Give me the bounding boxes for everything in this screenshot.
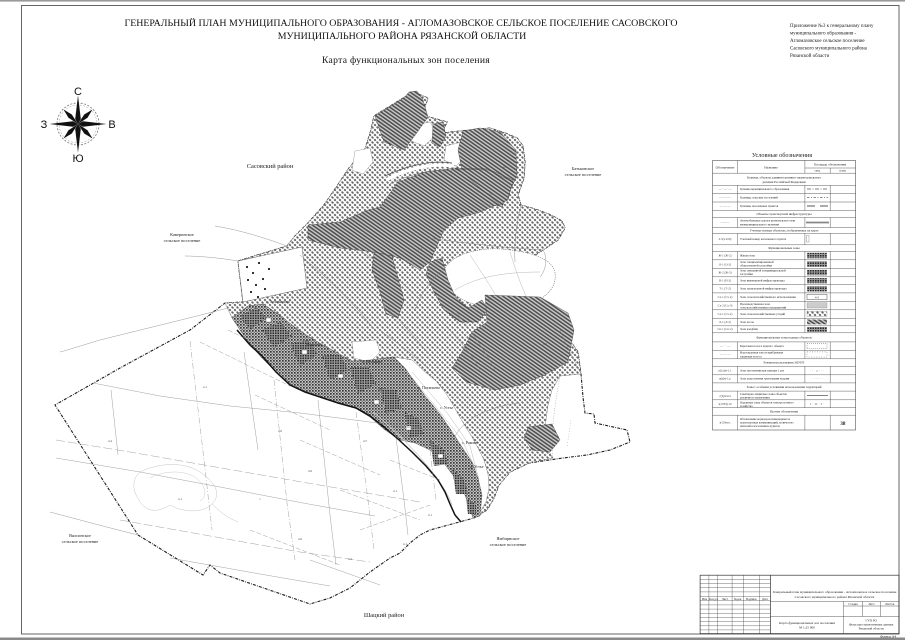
svg-text:Название: Название — [764, 165, 778, 169]
svg-text:4.1: 4.1 — [203, 385, 208, 389]
svg-text:Сх-1 (Сх-2): Сх-1 (Сх-2) — [718, 312, 733, 316]
svg-text:4.6: 4.6 — [378, 387, 383, 391]
svg-text:Сх-1 (Сх-2): Сх-1 (Сх-2) — [718, 295, 733, 299]
svg-text:4.1: 4.1 — [418, 247, 423, 251]
svg-text:Зона подтопления грунтовыми во: Зона подтопления грунтовыми водами — [740, 377, 790, 381]
svg-text:Зона лесов: Зона лесов — [740, 320, 754, 324]
svg-text:с. Агломазово: с. Агломазово — [266, 299, 290, 304]
svg-text:Зона инженерной инфраструктуры: Зона инженерной инфраструктуры — [740, 279, 785, 283]
svg-text:сельское поселение: сельское поселение — [565, 172, 602, 177]
svg-text:Подпись: Подпись — [746, 597, 758, 601]
svg-text:Границы сельских поселений: Границы сельских поселений — [740, 196, 778, 200]
svg-text:Каверинское: Каверинское — [170, 232, 194, 237]
svg-text:Кол.уч: Кол.уч — [709, 597, 718, 601]
svg-text:В: В — [108, 119, 115, 131]
svg-text:Зона сельскохозяйственных угод: Зона сельскохозяйственных угодий — [740, 312, 785, 316]
svg-text:Сасовского муниципального райо: Сасовского муниципального района — [790, 47, 868, 52]
svg-text:Темешево: Темешево — [305, 342, 322, 347]
svg-text:сущ.: сущ. — [815, 169, 821, 173]
svg-text:ГЕНЕРАЛЬНЫЙ ПЛАН МУНИЦИПАЛЬНО: ГЕНЕРАЛЬНЫЙ ПЛАН МУНИЦИПАЛЬНОГО ОБРАЗОВА… — [125, 17, 678, 29]
svg-text:общественной застройки: общественной застройки — [740, 264, 772, 268]
svg-text:4.5: 4.5 — [363, 439, 368, 443]
svg-text:4.1: 4.1 — [488, 297, 493, 301]
svg-text:Обозначение: Обозначение — [716, 165, 735, 169]
svg-text:4.6: 4.6 — [308, 469, 313, 473]
svg-text:Жилая зона: Жилая зона — [740, 254, 756, 258]
svg-text:з(ЛЭП)-10: з(ЛЭП)-10 — [718, 402, 732, 406]
svg-text:план.: план. — [840, 169, 847, 173]
svg-text:Батьковское: Батьковское — [572, 166, 595, 171]
svg-text:Рязанской области: Рязанской области — [859, 627, 884, 631]
svg-text:Объекты транспортной инфрастру: Объекты транспортной инфраструктуры — [756, 212, 812, 216]
svg-text:различного назначения: различного назначения — [740, 396, 770, 400]
svg-text:1 · 11 · 1 ·: 1 · 11 · 1 · — [810, 402, 824, 406]
svg-text:д. Потапьево: д. Потапьево — [418, 385, 440, 390]
svg-text:4.4: 4.4 — [108, 439, 113, 443]
svg-text:с. Устье: с. Устье — [440, 405, 453, 410]
svg-text:сельское поселение: сельское поселение — [490, 542, 527, 547]
svg-text:Лист: Лист — [868, 602, 875, 606]
svg-text:— · · —: — · · — — [719, 344, 731, 348]
svg-text:—··—··—: —··—··— — [718, 187, 733, 191]
svg-text:Режим использования ЗОУИТ: Режим использования ЗОУИТ — [764, 361, 805, 365]
svg-text:защитная полоса: защитная полоса — [740, 354, 762, 358]
svg-text:п. Игошино: п. Игошино — [362, 359, 382, 364]
svg-text:Карта функциональных зон посел: Карта функциональных зон поселения — [779, 621, 835, 625]
svg-text:Приложение №3 к генеральному п: Приложение №3 к генеральному плану — [790, 23, 874, 29]
svg-text:Шацкий район: Шацкий район — [364, 612, 405, 619]
svg-text:з(10)чел.: з(10)чел. — [719, 421, 731, 425]
svg-text:Зона кладбищ: Зона кладбищ — [740, 327, 759, 331]
svg-text:с. Раково: с. Раково — [462, 440, 477, 445]
svg-text:Ж-2 (Ж-3): Ж-2 (Ж-3) — [718, 270, 731, 274]
svg-text:Л-1 (Л-2): Л-1 (Л-2) — [719, 320, 731, 324]
svg-text:4.1: 4.1 — [428, 513, 433, 517]
svg-text:Изм: Изм — [702, 597, 707, 601]
svg-text:4.5: 4.5 — [543, 342, 548, 346]
svg-text:Карта функциональных зон посел: Карта функциональных зон поселения — [322, 55, 490, 66]
svg-text:Т-1 (Т-2): Т-1 (Т-2) — [719, 287, 730, 291]
svg-text:Площадь обозначения: Площадь обозначения — [814, 163, 847, 167]
svg-text:З: З — [41, 119, 48, 131]
svg-text:И-1 (И-2): И-1 (И-2) — [719, 279, 731, 283]
svg-text:— — —: — — — — [719, 353, 732, 357]
svg-text:Вялсинское: Вялсинское — [69, 533, 91, 538]
svg-text:деления Российской Федерации: деления Российской Федерации — [762, 180, 806, 184]
svg-text:Листов: Листов — [885, 602, 895, 606]
svg-text:Зоны с особыми условиями испол: Зоны с особыми условиями использования т… — [747, 385, 822, 389]
svg-text:Функциональные зоны водных объ: Функциональные зоны водных объектов — [756, 335, 812, 339]
svg-text:— — —: — — — — [719, 204, 732, 208]
svg-text:4.5: 4.5 — [503, 165, 508, 169]
svg-text:д. Устье: д. Устье — [470, 464, 484, 469]
svg-text:Ж-1 (Ж-2): Ж-1 (Ж-2) — [718, 254, 731, 258]
svg-text:Дата: Дата — [762, 597, 769, 601]
svg-text:Формат А4: Формат А4 — [880, 634, 896, 638]
svg-text:О-1 (О-2): О-1 (О-2) — [719, 263, 731, 267]
svg-text:4-5(2.456): 4-5(2.456) — [719, 237, 732, 241]
svg-text:муниципального образования -: муниципального образования - — [790, 32, 857, 37]
svg-text:хозяйства: хозяйства — [740, 404, 753, 408]
svg-text:· · · 1 · · ·: · · · 1 · · · — [810, 369, 824, 373]
svg-text:4.4: 4.4 — [348, 557, 353, 561]
svg-text:4.1: 4.1 — [403, 542, 408, 546]
svg-text:Агломазовское сельское поселен: Агломазовское сельское поселение — [790, 39, 865, 44]
svg-text:Сх-2 (Сх-3): Сх-2 (Сх-3) — [718, 304, 733, 308]
svg-text:Условные обозначения: Условные обозначения — [752, 152, 812, 159]
svg-text:Ю: Ю — [72, 153, 83, 165]
svg-text:4.1: 4.1 — [393, 489, 398, 493]
svg-text:Граница муниципального образов: Граница муниципального образования — [740, 187, 790, 191]
svg-text:МУНИЦИПАЛЬНОГО РАЙОНА РЯЗАНСКО: МУНИЦИПАЛЬНОГО РАЙОНА РЯЗАНСКОЙ ОБЛАСТИ — [278, 30, 527, 42]
svg-text:Учетный номер населенного пунк: Учетный номер населенного пункта — [740, 237, 787, 241]
svg-text:Лист: Лист — [722, 597, 729, 601]
svg-text:———: ——— — [720, 221, 731, 225]
svg-text:Генеральный план муниципальног: Генеральный план муниципального образова… — [773, 590, 897, 594]
svg-text:№док: №док — [734, 597, 742, 601]
svg-text:Ямбирнское: Ямбирнское — [497, 536, 520, 541]
svg-text:Функциональные зоны: Функциональные зоны — [768, 246, 800, 250]
svg-text:сельское поселение: сельское поселение — [62, 539, 99, 544]
svg-text:Сасовского муниципального райо: Сасовского муниципального района Рязанск… — [795, 595, 875, 599]
svg-text:Сасовский район: Сасовский район — [247, 163, 294, 170]
svg-text:жителей в населенных пунктах: жителей в населенных пунктах — [739, 424, 780, 428]
svg-text:М 1:25 000: М 1:25 000 — [799, 626, 815, 630]
svg-text:Прочие обозначения: Прочие обозначения — [770, 409, 798, 413]
svg-text:4.1: 4.1 — [178, 497, 183, 501]
svg-text:Сп-1 (Сп-2): Сп-1 (Сп-2) — [718, 327, 733, 331]
svg-text:Рязанской области: Рязанской области — [790, 54, 830, 59]
svg-text:38: 38 — [840, 422, 846, 427]
svg-text:в(1х)м-1.1: в(1х)м-1.1 — [718, 368, 732, 372]
svg-text:межмуниципального значения: межмуниципального значения — [740, 223, 780, 227]
svg-text:4-5: 4-5 — [815, 295, 820, 299]
svg-text:сельскохозяйственных предприят: сельскохозяйственных предприятий — [740, 306, 786, 310]
svg-text:Стадия: Стадия — [848, 602, 858, 606]
svg-text:в(р)м-1.р: в(р)м-1.р — [719, 377, 731, 381]
svg-text:4.6: 4.6 — [298, 537, 303, 541]
svg-text:сельское поселение: сельское поселение — [164, 238, 201, 243]
svg-text:4.5: 4.5 — [488, 192, 493, 196]
svg-text:Зона затопления при паводке 1: Зона затопления при паводке 1 раз — [740, 368, 785, 372]
svg-text:с(3)мЗ-О: с(3)мЗ-О — [719, 394, 731, 398]
svg-text:Береговая полоса водного объек: Береговая полоса водного объекта — [740, 344, 784, 348]
svg-text:Границы населенных пунктов: Границы населенных пунктов — [740, 204, 779, 208]
svg-text:· · · · · ·: · · · · · · — [811, 377, 822, 381]
svg-text:4.6: 4.6 — [278, 429, 283, 433]
svg-text:застройки: застройки — [740, 272, 753, 276]
svg-text:Зона сельскохозяйственного исп: Зона сельскохозяйственного использования — [740, 295, 796, 299]
svg-text:С: С — [74, 86, 82, 98]
svg-text:—·—·—·: —·—·—· — [718, 196, 731, 200]
svg-text:Зона транспортной инфраструкту: Зона транспортной инфраструктуры — [740, 287, 786, 291]
